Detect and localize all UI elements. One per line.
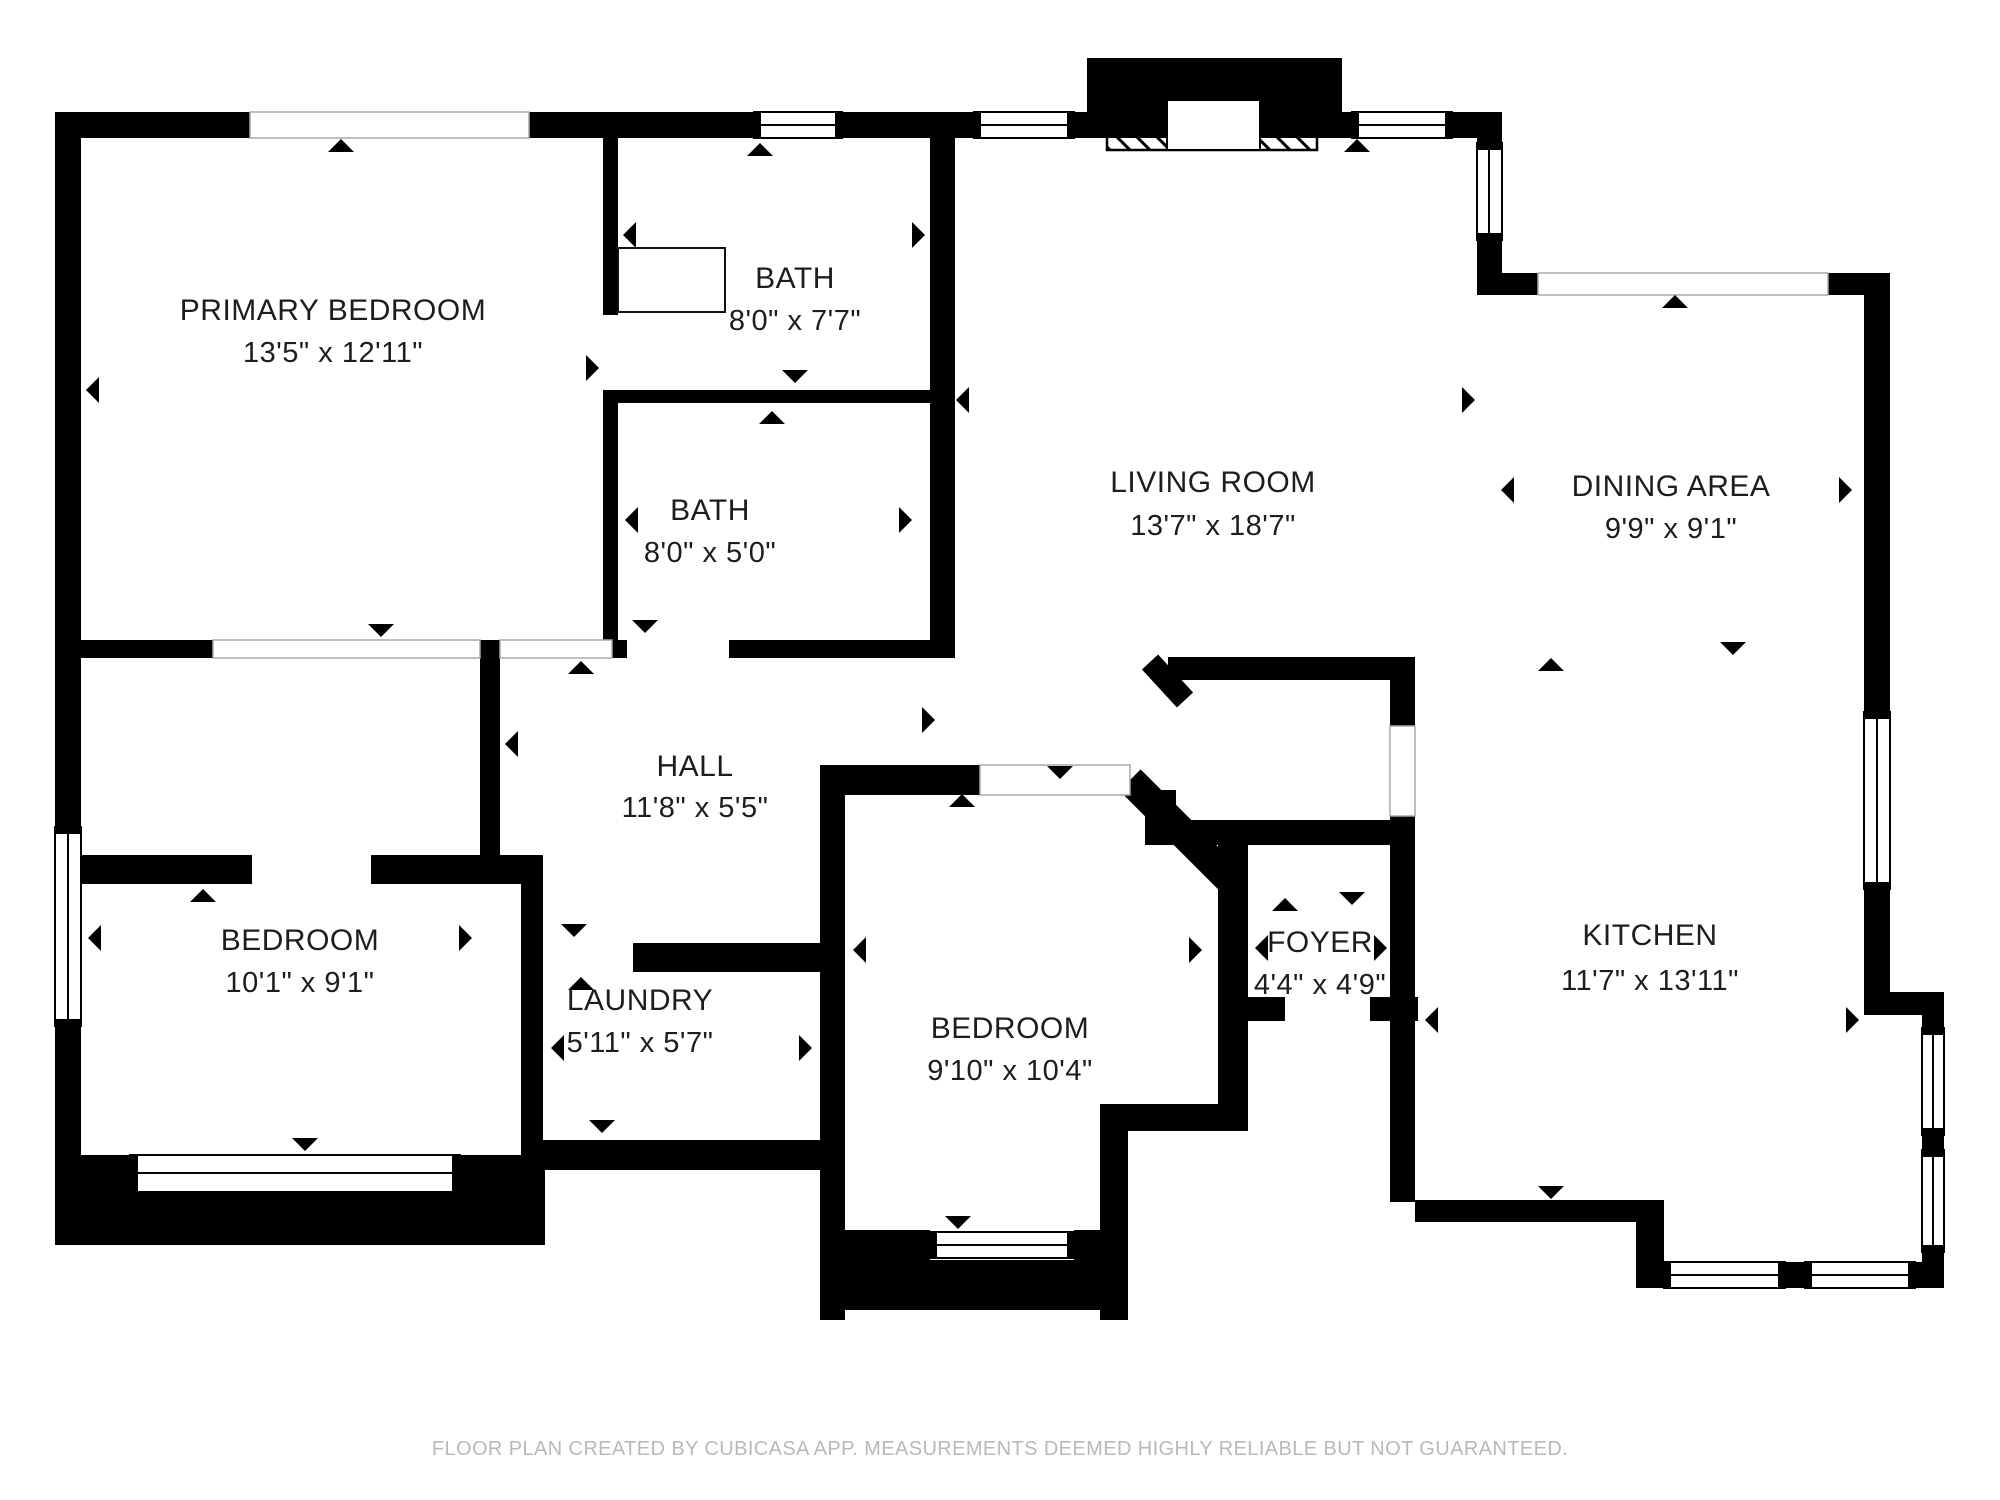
room-label-kitchen: KITCHEN <box>1582 919 1717 952</box>
window <box>1922 1150 1944 1252</box>
room-label-bath-lower: BATH <box>670 494 750 527</box>
room-label-laundry: LAUNDRY <box>567 984 713 1017</box>
floor-plan-page: PRIMARY BEDROOM 13'5" x 12'11" BATH 8'0"… <box>0 0 2000 1500</box>
floor-plan-drawing: PRIMARY BEDROOM 13'5" x 12'11" BATH 8'0"… <box>0 0 2000 1500</box>
opening <box>500 640 612 658</box>
room-label-bedroom-middle: BEDROOM <box>931 1012 1090 1045</box>
room-labels: PRIMARY BEDROOM 13'5" x 12'11" BATH 8'0"… <box>180 262 1771 1087</box>
window <box>1922 1028 1944 1135</box>
opening <box>213 640 480 658</box>
room-dims-laundry: 5'11" x 5'7" <box>567 1027 714 1059</box>
room-dims-bedroom-left: 10'1" x 9'1" <box>226 967 375 999</box>
walls <box>55 58 1944 1320</box>
room-label-bath-upper: BATH <box>755 262 835 295</box>
room-dims-dining-area: 9'9" x 9'1" <box>1605 513 1737 545</box>
window <box>974 112 1074 138</box>
window <box>754 112 842 138</box>
wall-openings <box>213 112 1828 816</box>
room-label-dining-area: DINING AREA <box>1572 470 1771 503</box>
room-dims-bedroom-middle: 9'10" x 10'4" <box>927 1055 1093 1087</box>
footer-disclaimer: FLOOR PLAN CREATED BY CUBICASA APP. MEAS… <box>432 1438 1568 1460</box>
fireplace-hearth <box>1167 100 1260 150</box>
room-dims-living-room: 13'7" x 18'7" <box>1130 510 1296 542</box>
room-label-bedroom-left: BEDROOM <box>221 924 380 957</box>
room-dims-bath-lower: 8'0" x 5'0" <box>644 537 776 569</box>
window <box>1805 1262 1915 1288</box>
room-label-hall: HALL <box>656 750 733 783</box>
room-label-primary-bedroom: PRIMARY BEDROOM <box>180 294 486 327</box>
room-dims-hall: 11'8" x 5'5" <box>622 792 769 824</box>
room-dims-foyer: 4'4" x 4'9" <box>1254 969 1386 1001</box>
window <box>1664 1262 1785 1288</box>
window <box>1477 143 1502 240</box>
window <box>1352 112 1452 138</box>
window <box>1864 712 1890 889</box>
room-dims-bath-upper: 8'0" x 7'7" <box>729 305 861 337</box>
window <box>55 827 81 1026</box>
room-dims-primary-bedroom: 13'5" x 12'11" <box>243 337 423 369</box>
room-dims-kitchen: 11'7" x 13'11" <box>1561 965 1739 997</box>
window <box>130 1155 460 1192</box>
opening <box>1538 273 1828 295</box>
window <box>930 1232 1074 1258</box>
room-label-foyer: FOYER <box>1267 926 1373 959</box>
bath-vanity <box>618 248 725 312</box>
room-label-living-room: LIVING ROOM <box>1110 466 1316 499</box>
fireplace <box>1107 78 1317 150</box>
opening <box>250 112 529 138</box>
opening <box>1390 726 1415 816</box>
